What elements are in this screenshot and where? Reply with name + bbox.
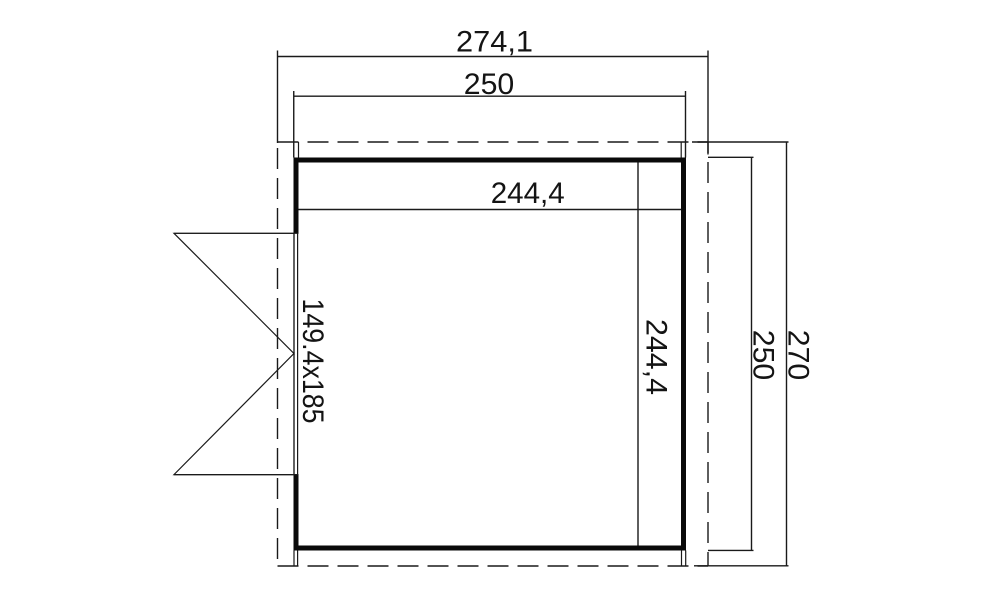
svg-text:274,1: 274,1 <box>456 26 533 59</box>
svg-text:270: 270 <box>781 330 814 381</box>
svg-text:250: 250 <box>746 330 779 381</box>
svg-text:244,4: 244,4 <box>491 177 565 210</box>
svg-text:250: 250 <box>464 68 515 101</box>
svg-text:244,4: 244,4 <box>640 319 673 395</box>
svg-text:149.4x185: 149.4x185 <box>296 299 329 424</box>
